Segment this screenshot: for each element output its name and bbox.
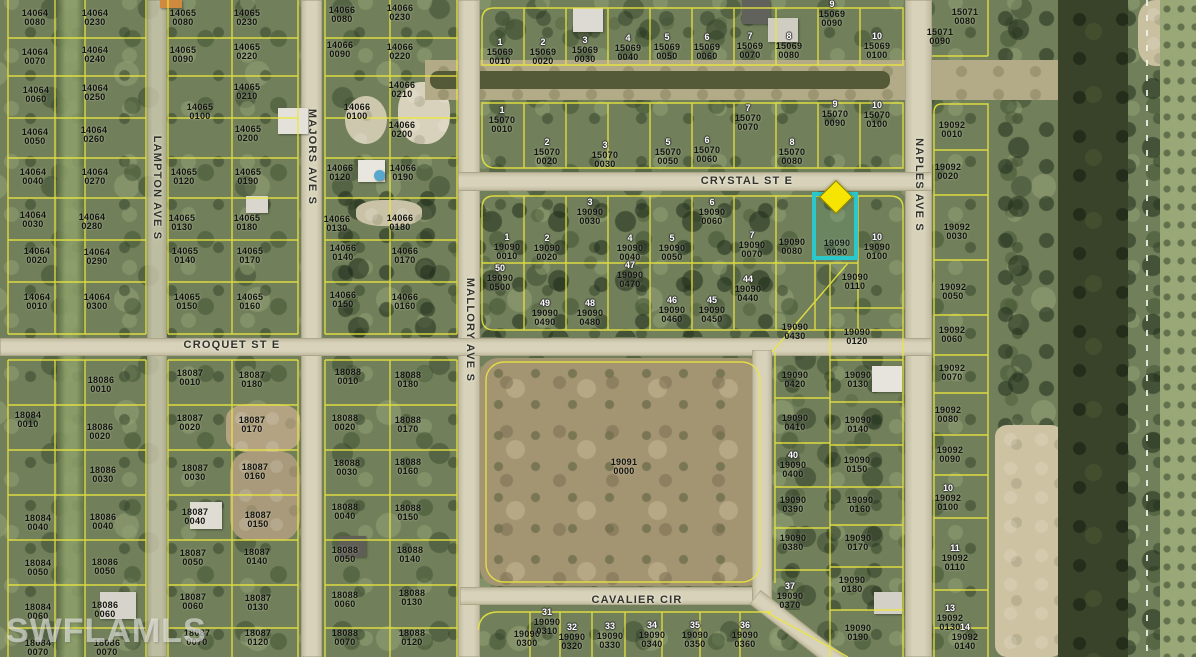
lot-number: 6 <box>704 33 709 42</box>
lot-number: 7 <box>749 231 754 240</box>
parcel-label: 140650200 <box>235 125 262 143</box>
street-label-mallory-ave-s: MALLORY AVE S <box>464 278 476 382</box>
parcel-label: 140660220 <box>387 43 414 61</box>
lot-number: 8 <box>786 32 791 41</box>
parcel-label: 190900120 <box>844 328 871 346</box>
lot-number: 2 <box>544 234 549 243</box>
parcel-label: 180880050 <box>332 546 359 564</box>
parcel-label: 140650160 <box>237 293 264 311</box>
parcel-label: 140650140 <box>172 247 199 265</box>
parcel-label: 4190900040 <box>617 234 644 262</box>
parcel-label: 140650210 <box>234 83 261 101</box>
parcel-label: 180870140 <box>244 548 271 566</box>
parcel-label: 180860020 <box>87 423 114 441</box>
parcel-label: 34190900340 <box>639 621 666 649</box>
lot-number: 9 <box>832 100 837 109</box>
parcel-label: 140650080 <box>170 9 197 27</box>
lot-number: 47 <box>625 261 635 270</box>
parcel-label: 150710090 <box>927 28 954 46</box>
lot-number: 5 <box>665 138 670 147</box>
parcel-label: 180840010 <box>15 411 42 429</box>
parcel-label: 190900190 <box>845 624 872 642</box>
lot-number: 33 <box>605 622 615 631</box>
parcel-label: 47190900470 <box>617 261 644 289</box>
parcel-label: 180880130 <box>399 589 426 607</box>
parcel-label: 180880040 <box>332 503 359 521</box>
lot-number: 2 <box>540 38 545 47</box>
lot-number: 31 <box>542 608 552 617</box>
parcel-label: 140650120 <box>171 168 198 186</box>
parcel-label: 190920030 <box>944 223 971 241</box>
parcel-label: 190900160 <box>847 496 874 514</box>
parcel-label: 11190920110 <box>942 544 969 572</box>
parcel-label: 5150690050 <box>654 33 681 61</box>
lot-number: 4 <box>625 34 630 43</box>
parcel-label: 180870130 <box>245 594 272 612</box>
lot-number: 10 <box>872 233 882 242</box>
parcel-label: 190920050 <box>940 283 967 301</box>
parcel-label: 7190900070 <box>739 231 766 259</box>
parcel-label: 140660090 <box>327 41 354 59</box>
lot-number: 11 <box>950 544 960 553</box>
parcel-label: 190920080 <box>935 406 962 424</box>
parcel-label: 140650100 <box>187 103 214 121</box>
parcel-label: 180860040 <box>90 513 117 531</box>
street-label-naples-ave-s: NAPLES AVE S <box>913 138 925 232</box>
parcel-label: 190900300 <box>514 630 541 648</box>
parcel-label: 140660120 <box>327 164 354 182</box>
parcel-label: 140650180 <box>234 214 261 232</box>
parcel-label: 140660180 <box>387 214 414 232</box>
parcel-label: 2150690020 <box>530 38 557 66</box>
parcel-label: 140640270 <box>82 168 109 186</box>
parcel-label: 6150690060 <box>694 33 721 61</box>
parcel-label: 140660140 <box>330 244 357 262</box>
parcel-label: 10150690100 <box>864 32 891 60</box>
parcel-label: 140650220 <box>234 43 261 61</box>
parcel-label: 140640280 <box>79 213 106 231</box>
parcel-label: 1150700010 <box>489 106 516 134</box>
parcel-label: 190900130 <box>845 371 872 389</box>
parcel-label: 180880030 <box>334 459 361 477</box>
labels-layer: 1406400801406402301406400701406402401406… <box>0 0 1196 657</box>
parcel-label: 140660130 <box>324 215 351 233</box>
parcel-label: 180870020 <box>177 414 204 432</box>
parcel-label: 180880160 <box>395 458 422 476</box>
lot-number: 34 <box>647 621 657 630</box>
parcel-label: 7150700070 <box>735 104 762 132</box>
parcel-label: 33190900330 <box>597 622 624 650</box>
parcel-label: 140660200 <box>389 121 416 139</box>
parcel-label: 140660230 <box>387 4 414 22</box>
parcel-label: 45190900450 <box>699 296 726 324</box>
parcel-label: 180870050 <box>180 549 207 567</box>
parcel-label: 2190900020 <box>534 234 561 262</box>
parcel-label: 180860010 <box>88 376 115 394</box>
parcel-label: 190920010 <box>939 121 966 139</box>
parcel-label: 140660210 <box>389 81 416 99</box>
parcel-label: 190900180 <box>839 576 866 594</box>
parcel-label: 32190900320 <box>559 623 586 651</box>
parcel-label: 190900140 <box>845 416 872 434</box>
parcel-label: 180880020 <box>332 414 359 432</box>
parcel-label: 180880140 <box>397 546 424 564</box>
parcel-label: 140660080 <box>329 6 356 24</box>
street-label-lampton-ave-s: LAMPTON AVE S <box>151 136 163 241</box>
parcel-label: 180880070 <box>332 629 359 647</box>
parcel-label: 140650190 <box>235 168 262 186</box>
lot-number: 13 <box>945 604 955 613</box>
parcel-label: 36190900360 <box>732 621 759 649</box>
parcel-label: 46190900460 <box>659 296 686 324</box>
lot-number: 46 <box>667 296 677 305</box>
parcel-label: 180870160 <box>242 463 269 481</box>
parcel-label: 9150690090 <box>819 0 846 28</box>
parcel-label: 180870010 <box>177 369 204 387</box>
parcel-label: 140650170 <box>237 247 264 265</box>
parcel-label: 49190900490 <box>532 299 559 327</box>
parcel-label: 140640250 <box>82 84 109 102</box>
parcel-label: 140660190 <box>390 164 417 182</box>
lot-number: 3 <box>602 141 607 150</box>
parcel-label: 190900380 <box>780 534 807 552</box>
parcel-label: 140640010 <box>24 293 51 311</box>
parcel-label: 40190900400 <box>780 451 807 479</box>
lot-number: 9 <box>829 0 834 9</box>
lot-number: 10 <box>943 484 953 493</box>
parcel-label: 180840040 <box>25 514 52 532</box>
lot-number: 50 <box>495 264 505 273</box>
street-label-cavalier-cir: CAVALIER CIR <box>592 594 683 606</box>
lot-number: 10 <box>872 101 882 110</box>
parcel-label: 140640020 <box>24 247 51 265</box>
parcel-label: 190920060 <box>939 326 966 344</box>
parcel-label: 140640290 <box>84 248 111 266</box>
parcel-label: 10150700100 <box>864 101 891 129</box>
parcel-label: 140660170 <box>392 247 419 265</box>
lot-number: 7 <box>747 32 752 41</box>
parcel-label: 140640030 <box>20 211 47 229</box>
lot-number: 36 <box>740 621 750 630</box>
lot-number: 49 <box>540 299 550 308</box>
parcel-label: 180870180 <box>239 371 266 389</box>
parcel-label: 190900150 <box>844 456 871 474</box>
parcel-label: 140640240 <box>82 46 109 64</box>
parcel-label: 180860030 <box>90 466 117 484</box>
parcel-label: 180870060 <box>180 593 207 611</box>
parcel-label: 180870170 <box>239 416 266 434</box>
lot-number: 4 <box>627 234 632 243</box>
parcel-label: 180860050 <box>92 558 119 576</box>
parcel-label: 6190900060 <box>699 198 726 226</box>
parcel-label: 140640080 <box>22 9 49 27</box>
lot-number: 7 <box>745 104 750 113</box>
parcel-label: 3150690030 <box>572 36 599 64</box>
parcel-label: 190910000 <box>611 458 638 476</box>
parcel-label: 180880010 <box>335 368 362 386</box>
parcel-label: 190920070 <box>939 364 966 382</box>
parcel-label: 180880150 <box>395 504 422 522</box>
lot-number: 6 <box>704 136 709 145</box>
lot-number: 1 <box>504 233 509 242</box>
parcel-label: 190900420 <box>782 371 809 389</box>
parcel-label: 140640070 <box>22 48 49 66</box>
parcel-label: 44190900440 <box>735 275 762 303</box>
parcel-label: 180880170 <box>395 416 422 434</box>
lot-number: 45 <box>707 296 717 305</box>
parcel-label: 140640040 <box>20 168 47 186</box>
lot-number: 10 <box>872 32 882 41</box>
parcel-label: 150710080 <box>952 8 979 26</box>
parcel-label: 5150700050 <box>655 138 682 166</box>
parcel-label: 180880060 <box>332 591 359 609</box>
parcel-label: 1190900010 <box>494 233 521 261</box>
parcel-label: 180870150 <box>245 511 272 529</box>
parcel-label: 140640260 <box>81 126 108 144</box>
lot-number: 35 <box>690 621 700 630</box>
parcel-label: 140640050 <box>22 128 49 146</box>
lot-number: 5 <box>669 234 674 243</box>
parcel-label: 14190920140 <box>952 623 979 651</box>
parcel-label: 190900390 <box>780 496 807 514</box>
parcel-label: 4150690040 <box>615 34 642 62</box>
lot-number: 3 <box>582 36 587 45</box>
lot-number: 2 <box>544 138 549 147</box>
lot-number: 37 <box>785 582 795 591</box>
parcel-label: 180870040 <box>182 508 209 526</box>
street-label-majors-ave-s: MAJORS AVE S <box>306 109 318 205</box>
parcel-label: 31190900310 <box>534 608 561 636</box>
parcel-label: 190920090 <box>937 446 964 464</box>
parcel-label: 180840050 <box>25 559 52 577</box>
street-label-croquet-st-e: CROQUET ST E <box>184 339 281 351</box>
lot-number: 44 <box>743 275 753 284</box>
lot-number: 14 <box>960 623 970 632</box>
lot-number: 8 <box>789 138 794 147</box>
parcel-label: 8150700080 <box>779 138 806 166</box>
parcel-label: 50190900500 <box>487 264 514 292</box>
parcel-label: 140650230 <box>234 9 261 27</box>
parcel-label: 190900110 <box>842 273 869 291</box>
lot-number: 40 <box>788 451 798 460</box>
parcel-label: 140650150 <box>174 293 201 311</box>
parcel-label: 140660150 <box>330 291 357 309</box>
parcel-label: 140650130 <box>169 214 196 232</box>
parcel-label: 10190900100 <box>864 233 891 261</box>
parcel-label: 3190900030 <box>577 198 604 226</box>
parcel-label: 6150700060 <box>694 136 721 164</box>
parcel-label: 2150700020 <box>534 138 561 166</box>
parcel-label: 3150700030 <box>592 141 619 169</box>
parcel-label: 180880120 <box>399 629 426 647</box>
parcel-label: 140640300 <box>84 293 111 311</box>
parcel-label: 140640230 <box>82 9 109 27</box>
parcel-label: 35190900350 <box>682 621 709 649</box>
parcel-label: 180880180 <box>395 371 422 389</box>
parcel-label: 140660160 <box>392 293 419 311</box>
parcel-label: 13190920130 <box>937 604 964 632</box>
parcel-label: 37190900370 <box>777 582 804 610</box>
parcel-label: 7150690070 <box>737 32 764 60</box>
parcel-label: 5190900050 <box>659 234 686 262</box>
parcel-label: 1150690010 <box>487 38 514 66</box>
parcel-label: 190900080 <box>779 238 806 256</box>
parcel-label: 10190920100 <box>935 484 962 512</box>
lot-number: 1 <box>499 106 504 115</box>
parcel-label: 48190900480 <box>577 299 604 327</box>
watermark: SWFLAMLS <box>6 612 207 651</box>
parcel-label: 190900410 <box>782 414 809 432</box>
parcel-label: 190900170 <box>845 534 872 552</box>
parcel-label: 180870030 <box>182 464 209 482</box>
lot-number: 48 <box>585 299 595 308</box>
parcel-label: 140640060 <box>23 86 50 104</box>
parcel-label: 9150700090 <box>822 100 849 128</box>
parcel-label: 180870120 <box>245 629 272 647</box>
parcel-label: 190900430 <box>782 323 809 341</box>
parcel-label: 190920020 <box>935 163 962 181</box>
lot-number: 3 <box>587 198 592 207</box>
parcel-label: 140660100 <box>344 103 371 121</box>
lot-number: 1 <box>497 38 502 47</box>
aerial-parcel-map[interactable]: 1406400801406402301406400701406402401406… <box>0 0 1196 657</box>
parcel-label: 8150690080 <box>776 32 803 60</box>
street-label-crystal-st-e: CRYSTAL ST E <box>701 175 793 187</box>
lot-number: 5 <box>664 33 669 42</box>
lot-number: 6 <box>709 198 714 207</box>
parcel-label: 140650090 <box>170 46 197 64</box>
lot-number: 32 <box>567 623 577 632</box>
